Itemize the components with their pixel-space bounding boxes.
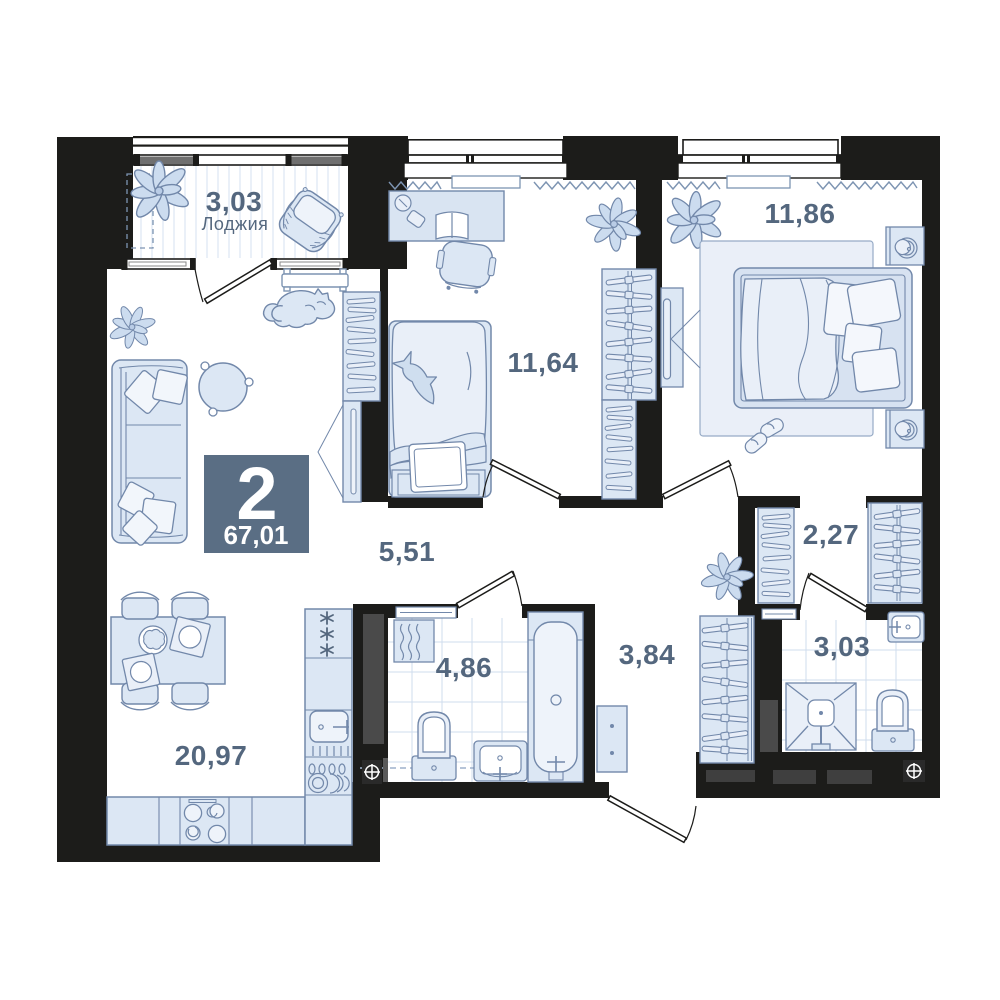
svg-text:67,01: 67,01 bbox=[223, 520, 288, 550]
svg-text:2,27: 2,27 bbox=[803, 519, 860, 550]
svg-text:3,03: 3,03 bbox=[814, 631, 871, 662]
svg-text:20,97: 20,97 bbox=[175, 740, 248, 771]
svg-text:11,86: 11,86 bbox=[764, 198, 835, 229]
svg-text:4,86: 4,86 bbox=[436, 652, 493, 683]
svg-text:Лоджия: Лоджия bbox=[202, 214, 269, 234]
svg-text:11,64: 11,64 bbox=[507, 347, 578, 378]
svg-text:5,51: 5,51 bbox=[379, 536, 436, 567]
svg-text:3,03: 3,03 bbox=[206, 186, 263, 217]
svg-text:3,84: 3,84 bbox=[619, 639, 676, 670]
